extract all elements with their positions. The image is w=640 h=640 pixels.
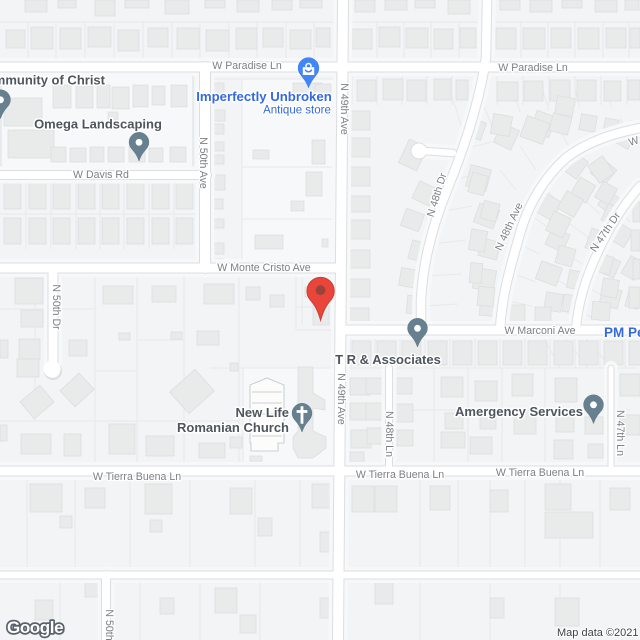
svg-text:Map data ©2021: Map data ©2021 — [557, 627, 639, 639]
svg-text:W Paradise Ln: W Paradise Ln — [498, 62, 568, 74]
svg-text:W Tierra Buena Ln: W Tierra Buena Ln — [93, 471, 181, 483]
svg-text:N 49th Ave: N 49th Ave — [335, 373, 347, 425]
svg-text:Romanian Church: Romanian Church — [177, 420, 289, 435]
svg-text:Antique store: Antique store — [263, 105, 331, 117]
svg-text:N 50th Ave: N 50th Ave — [197, 137, 209, 189]
svg-text:Community of Christ: Community of Christ — [0, 73, 106, 88]
svg-text:Omega Landscaping: Omega Landscaping — [34, 117, 162, 132]
svg-text:N 49th Ave: N 49th Ave — [338, 83, 350, 135]
svg-text:W Davis Rd: W Davis Rd — [73, 169, 129, 181]
svg-text:N 48th Ln: N 48th Ln — [383, 411, 395, 457]
svg-text:PM Pest: PM Pest — [604, 325, 640, 340]
svg-text:Amergency Services: Amergency Services — [455, 404, 583, 419]
svg-text:N 50th Dr: N 50th Dr — [50, 284, 62, 330]
svg-text:W Monte Cristo Ave: W Monte Cristo Ave — [217, 262, 311, 274]
svg-text:Imperfectly Unbroken: Imperfectly Unbroken — [196, 89, 332, 104]
svg-text:W Marconi Ave: W Marconi Ave — [504, 325, 575, 337]
svg-text:W Paradise Ln: W Paradise Ln — [212, 60, 282, 72]
svg-text:W Tierra Buena Ln: W Tierra Buena Ln — [356, 469, 444, 481]
svg-text:T R & Associates: T R & Associates — [335, 352, 441, 367]
svg-text:Google: Google — [7, 618, 63, 637]
svg-text:N 50th: N 50th — [103, 609, 115, 640]
svg-text:N 47th Ln: N 47th Ln — [614, 410, 626, 456]
svg-text:New Life: New Life — [236, 405, 289, 420]
svg-text:W Tierra Buena Ln: W Tierra Buena Ln — [496, 467, 584, 479]
